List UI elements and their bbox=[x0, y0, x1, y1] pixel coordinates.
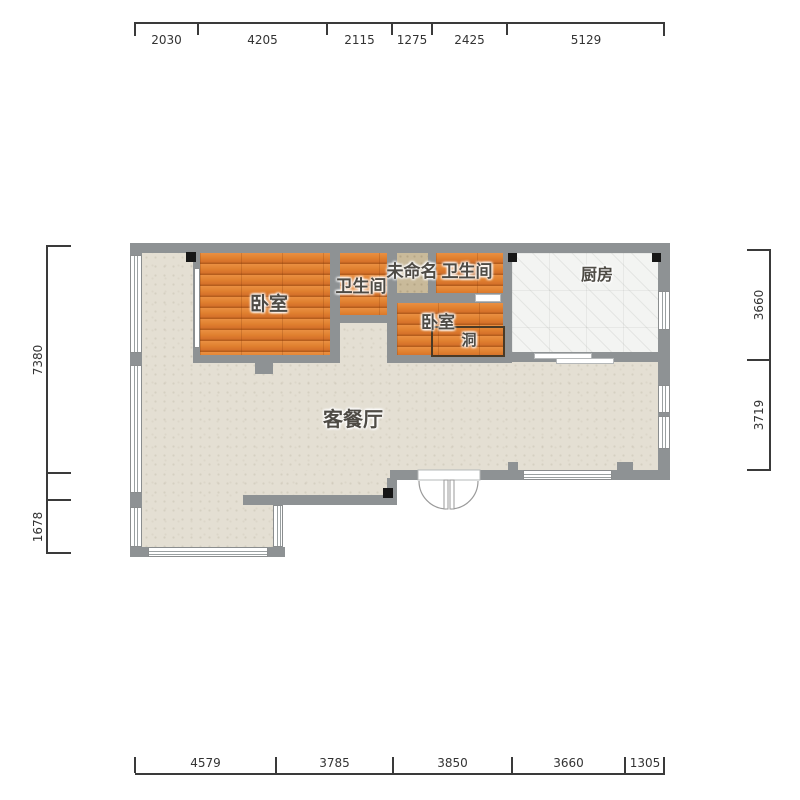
entry-door-swing-icon bbox=[410, 465, 500, 520]
dimension-value: 5129 bbox=[507, 32, 665, 48]
dimension-value: 1678 bbox=[30, 497, 46, 557]
column-top-left bbox=[186, 252, 196, 262]
entry-door bbox=[410, 465, 500, 520]
column-bottom-step bbox=[383, 488, 393, 498]
dimension-value: 2115 bbox=[327, 32, 392, 48]
dimension-tick bbox=[46, 499, 71, 501]
room-label-living-dining: 客餐厅 bbox=[317, 403, 389, 432]
wall-bedroom1-east bbox=[330, 253, 340, 363]
dimension-value: 2425 bbox=[432, 32, 507, 48]
dimension-value: 4579 bbox=[135, 755, 276, 771]
wall-outer-top bbox=[130, 243, 670, 253]
wall-pier-kitchen-line bbox=[508, 462, 518, 470]
dimension-line bbox=[135, 22, 665, 24]
dimension-value: 3850 bbox=[393, 755, 512, 771]
dimension-value: 7380 bbox=[30, 330, 46, 390]
window-left-upper bbox=[130, 255, 142, 353]
dimension-tick bbox=[747, 249, 771, 251]
window-right-kitchen bbox=[658, 291, 670, 330]
column-kitchen-nw bbox=[508, 253, 517, 262]
window-bottom-left bbox=[148, 547, 268, 557]
wall-step-horizontal bbox=[243, 495, 397, 505]
room-label-hole: 洞 bbox=[456, 329, 482, 350]
door-kitchen-slider-panel-2 bbox=[556, 358, 614, 364]
column-kitchen-ne bbox=[652, 253, 661, 262]
room-label-kitchen: 厨房 bbox=[572, 261, 622, 285]
dimension-value: 3660 bbox=[512, 755, 625, 771]
dimension-tick bbox=[46, 472, 71, 474]
dimension-line bbox=[46, 246, 48, 554]
room-label-unnamed: 未命名 bbox=[381, 257, 443, 282]
dimension-value: 4205 bbox=[198, 32, 327, 48]
window-step-east bbox=[273, 505, 283, 547]
wall-bathroom1-south bbox=[330, 315, 392, 323]
dimension-value: 2030 bbox=[135, 32, 198, 48]
dimension-tick bbox=[46, 552, 71, 554]
window-right-living-2 bbox=[658, 416, 670, 449]
dimension-tick bbox=[46, 245, 71, 247]
room-living-dining-extension bbox=[142, 470, 283, 549]
wall-bedroom1-south bbox=[193, 355, 340, 363]
dimension-value: 3660 bbox=[751, 275, 767, 335]
wall-pier-bottom-right bbox=[617, 462, 633, 470]
room-label-bathroom-2: 卫生间 bbox=[436, 257, 498, 282]
room-living-dining-step bbox=[283, 470, 397, 497]
window-right-living-1 bbox=[658, 385, 670, 413]
dimension-value: 3785 bbox=[276, 755, 393, 771]
wall-bedroom1-door-pier bbox=[255, 363, 273, 374]
dimension-value: 1305 bbox=[625, 755, 665, 771]
dimension-value: 3719 bbox=[751, 385, 767, 445]
window-left-middle bbox=[130, 365, 142, 493]
opening-bathroom2-south bbox=[475, 294, 501, 302]
floor-plan-canvas: 2030 4205 2115 1275 2425 5129 4579 3785 … bbox=[0, 0, 800, 800]
window-bottom-main bbox=[523, 470, 612, 480]
dimension-tick bbox=[747, 359, 771, 361]
room-label-bedroom-1: 卧室 bbox=[224, 289, 314, 316]
window-left-lower bbox=[130, 507, 142, 547]
dimension-tick bbox=[747, 469, 771, 471]
dimension-line bbox=[135, 773, 665, 775]
dimension-value: 1275 bbox=[392, 32, 432, 48]
door-bedroom1-west-slider bbox=[194, 268, 200, 348]
